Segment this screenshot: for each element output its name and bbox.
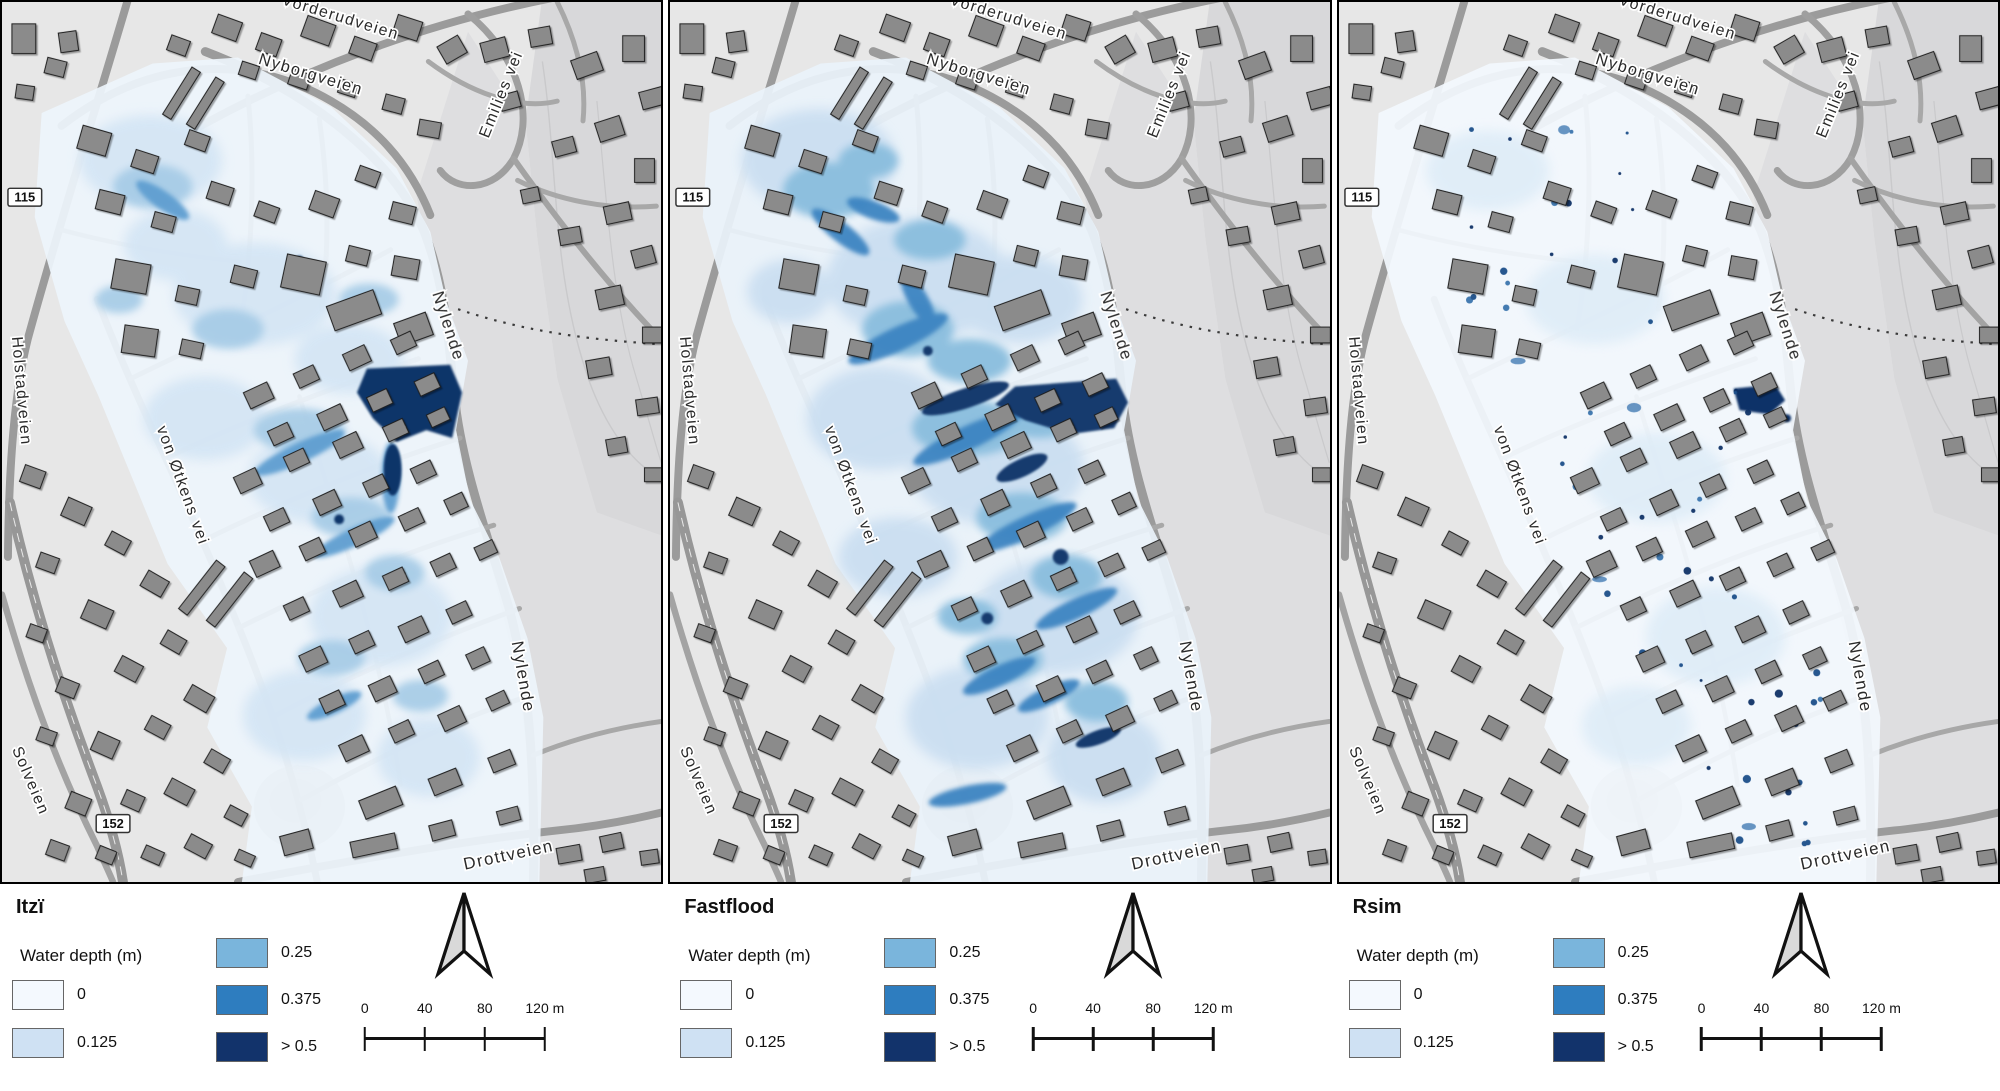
route-badge-label: 115 <box>683 190 704 205</box>
legend-item: 0 <box>1349 980 1423 1010</box>
legend-swatch-gt05 <box>1553 1032 1605 1062</box>
route-badge: 152 <box>96 815 130 833</box>
panel-fastflood: VorderudveienNyborgveienEmilies veiHolst… <box>668 0 1331 1091</box>
scale-bar: 0 40 80 120 m <box>1033 1000 1213 1051</box>
legend-item: > 0.5 <box>216 1032 317 1062</box>
scale-label-40: 40 <box>417 1000 433 1016</box>
legend-label: 0.125 <box>745 1034 785 1052</box>
scale-bar-line <box>365 1027 545 1051</box>
legend-item: > 0.5 <box>884 1032 985 1062</box>
scale-bar-labels: 0 40 80 120 m <box>1701 1000 1881 1018</box>
legend-rsim: Rsim Water depth (m) 0 0.125 0.25 0.375 … <box>1337 884 2000 1091</box>
route-badge-label: 115 <box>14 190 35 205</box>
legend-swatch-0375 <box>1553 985 1605 1015</box>
route-badge: 115 <box>8 188 42 206</box>
panel-title: Fastflood <box>684 896 774 919</box>
flood-map-fastflood: VorderudveienNyborgveienEmilies veiHolst… <box>670 2 1329 882</box>
legend-item: 0.375 <box>1553 985 1658 1015</box>
scale-label-40: 40 <box>1754 1000 1770 1016</box>
legend-swatch-0125 <box>680 1028 732 1058</box>
scale-label-120m: 120 m <box>1194 1000 1233 1016</box>
legend-item: 0.25 <box>216 938 312 968</box>
route-badge-label: 152 <box>102 816 123 831</box>
legend-label: > 0.5 <box>949 1038 985 1056</box>
legend-label: 0.375 <box>949 991 989 1009</box>
legend-swatch-025 <box>216 938 268 968</box>
legend-label: > 0.5 <box>281 1038 317 1056</box>
legend-label: 0.375 <box>1618 991 1658 1009</box>
legend-fastflood: Fastflood Water depth (m) 0 0.125 0.25 0… <box>668 884 1331 1091</box>
panel-title: Rsim <box>1353 896 1402 919</box>
route-badge: 115 <box>1345 188 1379 206</box>
scale-bar: 0 40 80 120 m <box>365 1000 545 1051</box>
legend-swatch-0375 <box>884 985 936 1015</box>
legend-label: 0 <box>745 986 754 1004</box>
flood-map-rsim: VorderudveienNyborgveienEmilies veiHolst… <box>1339 2 1998 882</box>
legend-label: 0.25 <box>281 944 312 962</box>
legend-swatch-0125 <box>1349 1028 1401 1058</box>
north-arrow-icon <box>1101 890 1165 982</box>
legend-label: 0.375 <box>281 991 321 1009</box>
legend-header: Water depth (m) <box>688 946 810 966</box>
legend-swatch-gt05 <box>884 1032 936 1062</box>
scale-label-80: 80 <box>477 1000 493 1016</box>
legend-swatch-0 <box>1349 980 1401 1010</box>
legend-item: 0 <box>680 980 754 1010</box>
legend-swatch-0375 <box>216 985 268 1015</box>
legend-header: Water depth (m) <box>20 946 142 966</box>
legend-label: > 0.5 <box>1618 1038 1654 1056</box>
scale-label-80: 80 <box>1145 1000 1161 1016</box>
panel-itzi: VorderudveienNyborgveienEmilies veiHolst… <box>0 0 663 1091</box>
scale-bar-labels: 0 40 80 120 m <box>365 1000 545 1018</box>
map-fastflood: VorderudveienNyborgveienEmilies veiHolst… <box>668 0 1331 884</box>
scale-bar-labels: 0 40 80 120 m <box>1033 1000 1213 1018</box>
legend-item: 0.25 <box>1553 938 1649 968</box>
map-itzi: VorderudveienNyborgveienEmilies veiHolst… <box>0 0 663 884</box>
legend-swatch-0 <box>12 980 64 1010</box>
legend-itzi: Itzï Water depth (m) 0 0.125 0.25 0.375 … <box>0 884 663 1091</box>
scale-label-0: 0 <box>1698 1000 1706 1016</box>
legend-swatch-0125 <box>12 1028 64 1058</box>
flood-map-itzi: VorderudveienNyborgveienEmilies veiHolst… <box>2 2 661 882</box>
legend-swatch-0 <box>680 980 732 1010</box>
legend-item: 0.125 <box>680 1028 785 1058</box>
legend-item: 0.375 <box>884 985 989 1015</box>
legend-item: 0.375 <box>216 985 321 1015</box>
scale-bar-line <box>1033 1027 1213 1051</box>
north-arrow-icon <box>1769 890 1833 982</box>
scale-label-0: 0 <box>361 1000 369 1016</box>
scale-bar: 0 40 80 120 m <box>1701 1000 1881 1051</box>
scale-label-40: 40 <box>1085 1000 1101 1016</box>
legend-swatch-025 <box>1553 938 1605 968</box>
legend-header: Water depth (m) <box>1357 946 1479 966</box>
legend-swatch-gt05 <box>216 1032 268 1062</box>
legend-item: > 0.5 <box>1553 1032 1654 1062</box>
legend-item: 0.125 <box>12 1028 117 1058</box>
legend-item: 0.25 <box>884 938 980 968</box>
route-badge: 115 <box>676 188 710 206</box>
legend-item: 0.125 <box>1349 1028 1454 1058</box>
legend-swatch-025 <box>884 938 936 968</box>
north-arrow-icon <box>432 890 496 982</box>
panel-title: Itzï <box>16 896 44 919</box>
scale-bar-line <box>1701 1027 1881 1051</box>
scale-label-0: 0 <box>1029 1000 1037 1016</box>
scale-label-80: 80 <box>1814 1000 1830 1016</box>
scale-label-120m: 120 m <box>525 1000 564 1016</box>
route-badge: 152 <box>765 815 799 833</box>
route-badge-label: 115 <box>1351 190 1372 205</box>
legend-label: 0 <box>1414 986 1423 1004</box>
route-badge-label: 152 <box>1439 816 1460 831</box>
legend-label: 0.125 <box>1414 1034 1454 1052</box>
scale-label-120m: 120 m <box>1862 1000 1901 1016</box>
legend-label: 0.25 <box>1618 944 1649 962</box>
legend-item: 0 <box>12 980 86 1010</box>
route-badge-label: 152 <box>771 816 792 831</box>
flood-model-comparison-figure: VorderudveienNyborgveienEmilies veiHolst… <box>0 0 2000 1091</box>
panel-rsim: VorderudveienNyborgveienEmilies veiHolst… <box>1337 0 2000 1091</box>
legend-label: 0.25 <box>949 944 980 962</box>
route-badge: 152 <box>1433 815 1467 833</box>
map-rsim: VorderudveienNyborgveienEmilies veiHolst… <box>1337 0 2000 884</box>
legend-label: 0.125 <box>77 1034 117 1052</box>
legend-label: 0 <box>77 986 86 1004</box>
